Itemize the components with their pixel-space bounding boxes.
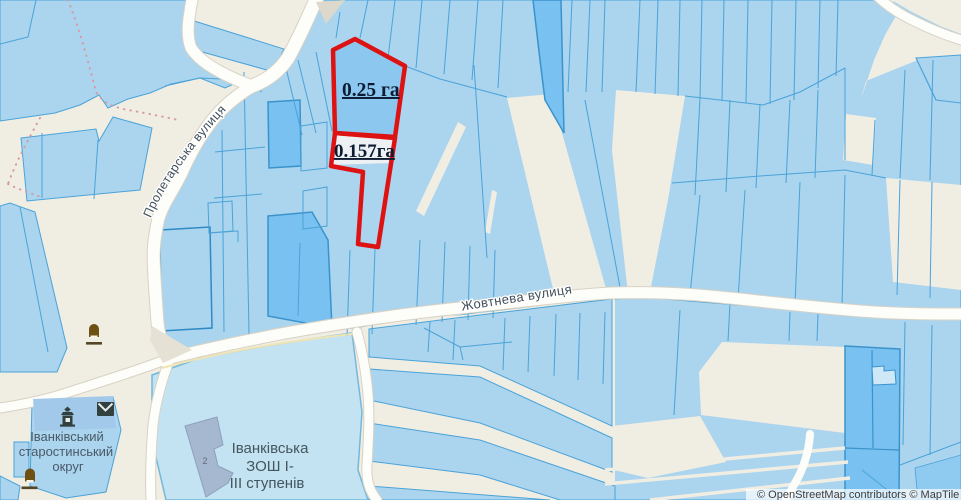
svg-text:округ: округ bbox=[52, 459, 84, 474]
svg-text:2: 2 bbox=[202, 456, 207, 466]
svg-text:0.157га: 0.157га bbox=[334, 141, 395, 162]
svg-text:© OpenStreetMap contributors ©: © OpenStreetMap contributors © MapTile bbox=[757, 489, 959, 500]
svg-text:ІІІ ступенів: ІІІ ступенів bbox=[230, 475, 305, 492]
svg-text:0.25 га: 0.25 га bbox=[342, 80, 400, 101]
svg-text:ЗОШ І-: ЗОШ І- bbox=[246, 458, 294, 475]
svg-text:Іванківський: Іванківський bbox=[30, 429, 104, 444]
svg-text:старостинський: старостинський bbox=[19, 444, 113, 459]
svg-text:Іванківська: Іванківська bbox=[232, 440, 309, 457]
